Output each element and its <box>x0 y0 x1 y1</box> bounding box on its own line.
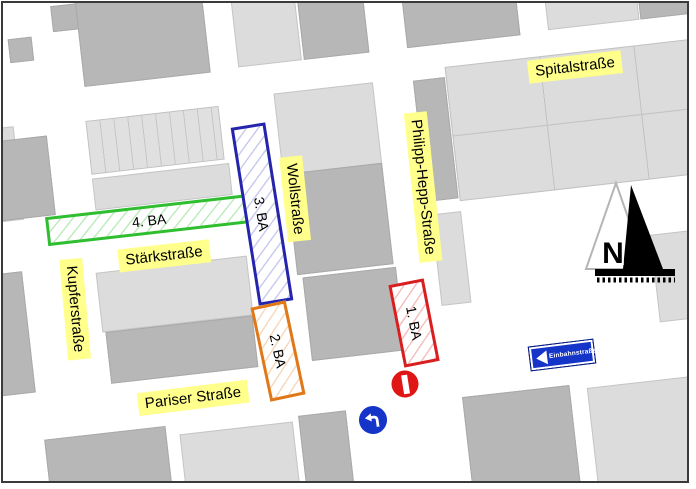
building-block <box>534 1 639 30</box>
building-block <box>70 1 210 87</box>
building-block <box>393 1 520 48</box>
construction-phase-map: 4. BA 3. BA 2. BA 1. BA Spitalstraße Phi… <box>0 0 696 489</box>
building-block <box>587 376 689 483</box>
building-block <box>298 410 362 483</box>
phase-label-3ba: 3. BA <box>251 196 272 232</box>
phase-label-2ba: 2. BA <box>267 333 290 370</box>
one-way-arrow-icon <box>535 350 548 365</box>
building-block <box>1 271 36 403</box>
garage-row <box>85 106 224 175</box>
building-block <box>224 1 301 67</box>
building-block <box>179 422 308 483</box>
map-frame: 4. BA 3. BA 2. BA 1. BA Spitalstraße Phi… <box>1 1 689 483</box>
no-entry-bar <box>401 374 410 394</box>
phase-label-1ba: 1. BA <box>403 305 425 342</box>
north-arrow: N <box>583 179 683 287</box>
building-block <box>302 267 405 361</box>
building-block <box>8 37 35 64</box>
building-block <box>44 426 182 483</box>
building-block <box>1 136 56 226</box>
phase-label-4ba: 4. BA <box>131 210 167 230</box>
building-block <box>292 1 369 60</box>
building-block <box>462 385 586 483</box>
turn-left-arrow <box>361 408 386 433</box>
one-way-label: Einbahnstraße <box>549 347 597 360</box>
north-label: N <box>602 237 624 270</box>
